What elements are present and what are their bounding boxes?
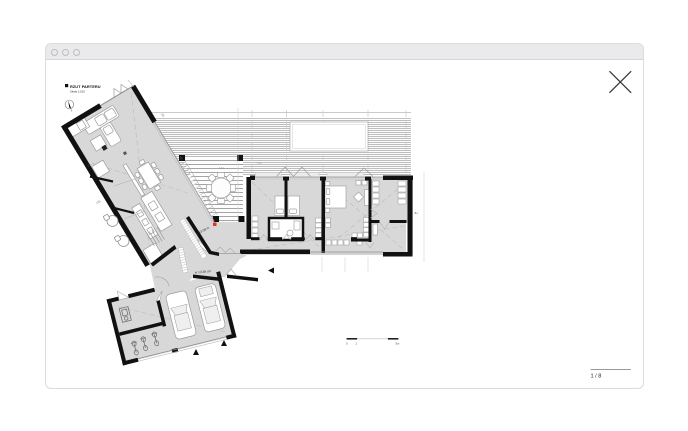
svg-text:JU: JU xyxy=(414,211,418,215)
svg-text:12a: 12a xyxy=(219,166,224,170)
svg-text:Skala 1:100: Skala 1:100 xyxy=(70,90,85,94)
svg-text:1: 1 xyxy=(356,342,358,346)
svg-text:RZUT PARTERU: RZUT PARTERU xyxy=(70,84,101,89)
svg-text:0: 0 xyxy=(346,342,348,346)
svg-text:12b: 12b xyxy=(257,161,262,165)
svg-text:13.: 13. xyxy=(160,112,166,118)
svg-text:5m: 5m xyxy=(396,342,401,346)
svg-text:1 / 8: 1 / 8 xyxy=(591,374,602,380)
svg-text:US.: US. xyxy=(95,199,101,205)
